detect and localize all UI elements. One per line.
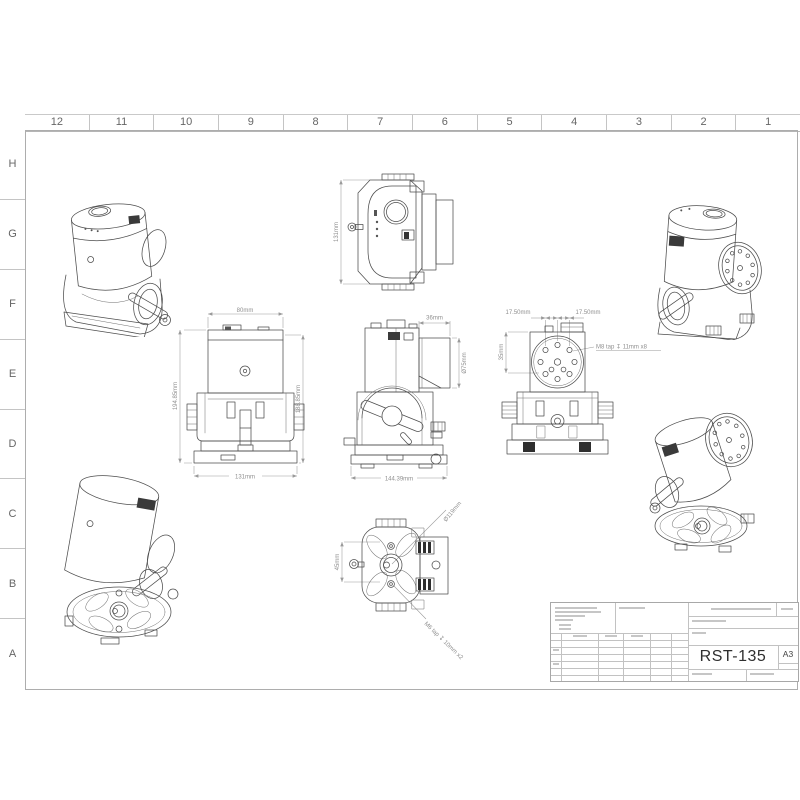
grid-ruler-rows: H G F E D C B A: [0, 130, 25, 688]
microtext-line: [559, 628, 571, 630]
note-bottom-diameter: Ø119mm: [443, 501, 463, 523]
title-block-line: [623, 633, 624, 681]
isometric-view-right: [645, 386, 765, 564]
title-block: RST-135 A3: [550, 602, 799, 682]
title-block-line: [551, 675, 688, 676]
microtext-line: [692, 673, 712, 675]
title-block-line: [688, 669, 798, 670]
drawing-sheet: 12 11 10 9 8 7 6 5 4 3 2 1 H G F E D C B…: [0, 0, 800, 800]
title-block-line: [650, 633, 651, 681]
dim-back-left-height: 35mm: [499, 344, 505, 361]
grid-row-label: E: [0, 340, 25, 410]
microtext-line: [573, 635, 587, 637]
title-block-line: [598, 633, 599, 681]
microtext-line: [692, 632, 706, 634]
microtext-line: [555, 611, 601, 613]
grid-column-label: 6: [412, 115, 477, 131]
bottom-view-drawing: [350, 519, 449, 611]
grid-column-label: 8: [283, 115, 348, 131]
title-block-line: [551, 633, 688, 634]
title-block-line: [688, 628, 798, 629]
grid-column-label: 3: [606, 115, 671, 131]
microtext-line: [555, 607, 597, 609]
note-bottom-tap: M6 tap ↧ 10mm x2: [423, 620, 465, 660]
microtext-line: [711, 608, 771, 610]
iso-bl-cylinder: [64, 470, 161, 589]
dim-front-right-height: 188.85mm: [296, 385, 302, 413]
top-view: 131mm: [330, 166, 470, 298]
title-block-line: [551, 640, 688, 641]
dim-front-top-width: 80mm: [237, 308, 254, 314]
drawing-number: RST-135: [688, 645, 778, 669]
microtext-line: [555, 615, 585, 617]
isometric-view-bottom-left: [45, 466, 185, 648]
iso-bl-base: [65, 565, 178, 644]
dim-back-offset-left: 17.50mm: [505, 310, 530, 316]
dim-top-height: 131mm: [334, 222, 340, 242]
title-block-line: [551, 647, 688, 648]
grid-row-label: F: [0, 270, 25, 340]
iso-tl-saddle: [64, 275, 171, 337]
microtext-line: [555, 619, 573, 621]
bottom-view: 45mm Ø119mm M6 tap ↧ 10mm x2: [328, 478, 493, 660]
iso-r-cylinder: [652, 412, 734, 507]
grid-row-label: G: [0, 200, 25, 270]
title-block-line: [551, 668, 688, 669]
title-block-line: [776, 603, 777, 616]
note-back-tap: M8 tap ↧ 11mm x8: [596, 344, 648, 351]
grid-column-label: 5: [477, 115, 542, 131]
back-view: 17.50mm 17.50mm 35mm M8 tap ↧ 11mm x8: [493, 294, 668, 466]
back-view-drawing: [502, 323, 613, 454]
grid-row-label: B: [0, 549, 25, 619]
microtext-line: [631, 635, 643, 637]
microtext-line: [553, 663, 559, 665]
grid-row-label: D: [0, 410, 25, 480]
dim-back-offset-right: 17.50mm: [575, 310, 600, 316]
title-block-line: [615, 603, 616, 633]
grid-column-label: 4: [541, 115, 606, 131]
title-block-line: [551, 661, 688, 662]
dim-front-left-height: 194.85mm: [173, 382, 179, 410]
iso-tr-flange: [713, 238, 766, 299]
iso-tl-cylinder: [70, 201, 153, 294]
grid-column-label: 9: [218, 115, 283, 131]
grid-row-label: H: [0, 130, 25, 200]
paper-size-label: A3: [778, 645, 798, 663]
title-block-line: [688, 616, 798, 617]
microtext-line: [559, 624, 571, 626]
iso-r-base: [649, 473, 754, 552]
microtext-line: [781, 608, 793, 610]
front-view: 80mm 194.85mm 188.85mm 131mm: [163, 298, 313, 488]
front-view-drawing: [187, 325, 304, 463]
isometric-view-top-left: [52, 182, 177, 337]
title-block-line: [746, 669, 747, 681]
grid-column-label: 10: [153, 115, 218, 131]
iso-tl-drum: [138, 227, 171, 270]
microtext-line: [750, 673, 774, 675]
title-block-line: [778, 663, 798, 664]
microtext-line: [553, 649, 559, 651]
grid-column-label: 11: [89, 115, 154, 131]
title-block-line: [671, 633, 672, 681]
title-block-line: [551, 654, 688, 655]
top-view-drawing: [348, 174, 453, 290]
dim-front-bottom-width: 131mm: [235, 475, 255, 481]
grid-row-label: C: [0, 479, 25, 549]
grid-column-label: 12: [25, 115, 89, 131]
dim-side-right-diameter: Ø75mm: [462, 352, 468, 373]
title-block-line: [561, 633, 562, 681]
side-view-drawing: [344, 320, 450, 468]
microtext-line: [692, 620, 726, 622]
iso-r-flange: [699, 407, 759, 473]
dim-side-top-width: 36mm: [426, 316, 443, 322]
dim-bottom-left-height: 45mm: [335, 554, 341, 571]
iso-bl-drum: [142, 531, 180, 577]
grid-column-label: 1: [735, 115, 800, 131]
top-view-dimension-lines: [341, 180, 370, 284]
microtext-line: [619, 607, 645, 609]
side-view: 36mm Ø75mm 144.39mm: [343, 298, 495, 488]
microtext-line: [605, 635, 617, 637]
grid-row-label: A: [0, 619, 25, 688]
grid-column-label: 2: [671, 115, 736, 131]
iso-tr-cylinder: [664, 204, 738, 293]
grid-column-label: 7: [347, 115, 412, 131]
front-view-dimension-lines: [180, 314, 303, 476]
